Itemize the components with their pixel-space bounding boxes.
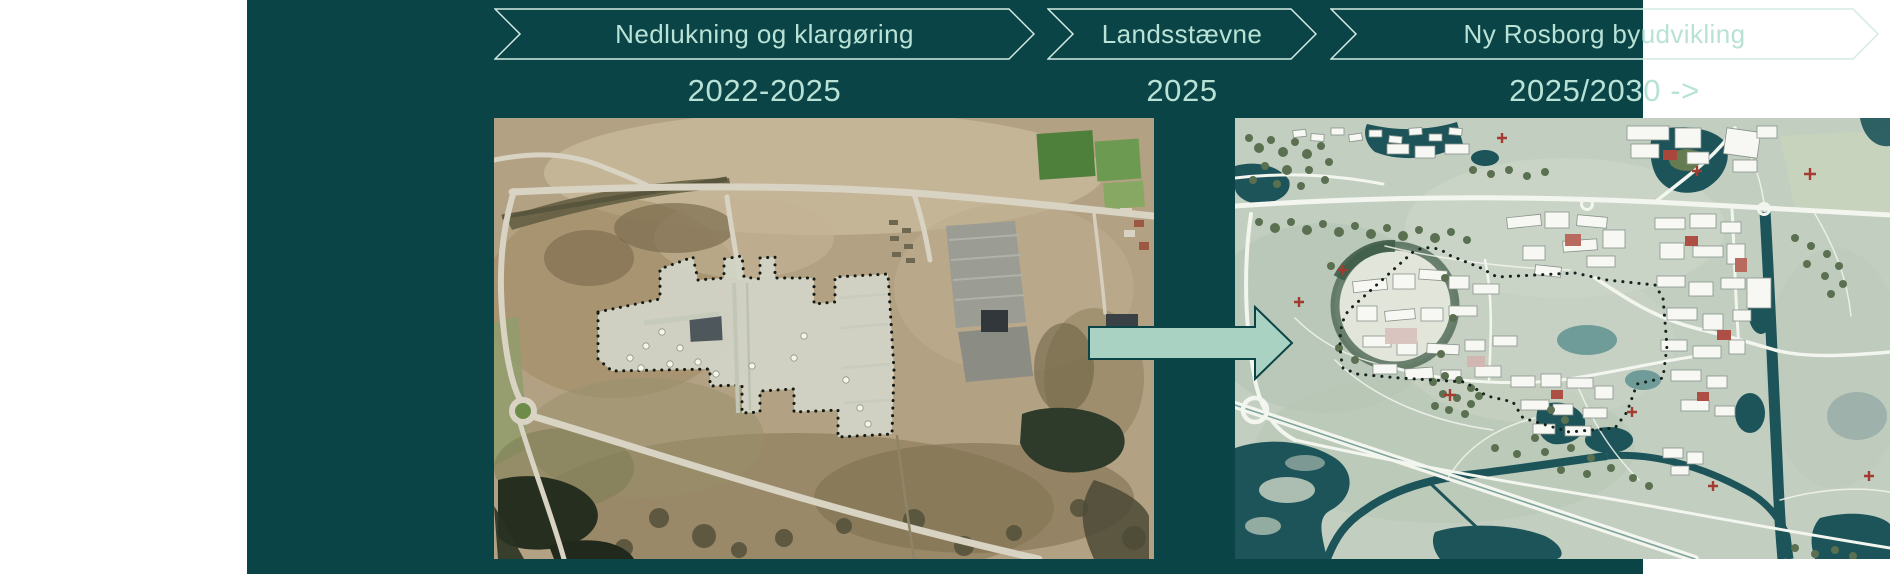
phase-period-1: 2022-2025 — [494, 72, 1035, 110]
roundabout — [512, 400, 534, 422]
transition-arrow-icon — [1088, 305, 1294, 381]
phase-label: Nedlukning og klargøring — [494, 8, 1035, 60]
timeline-panel: Nedlukning og klargøring Landsstævne Ny … — [247, 0, 1643, 574]
phase-label: Landsstævne — [1047, 8, 1317, 60]
phase-chevron-3: Ny Rosborg byudvikling — [1330, 8, 1879, 60]
aerial-photo-2022 — [494, 118, 1154, 559]
phase-chevron-1: Nedlukning og klargøring — [494, 8, 1035, 60]
slide: Nedlukning og klargøring Landsstævne Ny … — [0, 0, 1903, 574]
phase-period-3: 2025/2030 -> — [1330, 72, 1879, 110]
phase-label: Ny Rosborg byudvikling — [1330, 8, 1879, 60]
phase-period-2: 2025 — [1047, 72, 1317, 110]
masterplan-map — [1235, 118, 1890, 559]
phase-chevron-2: Landsstævne — [1047, 8, 1317, 60]
